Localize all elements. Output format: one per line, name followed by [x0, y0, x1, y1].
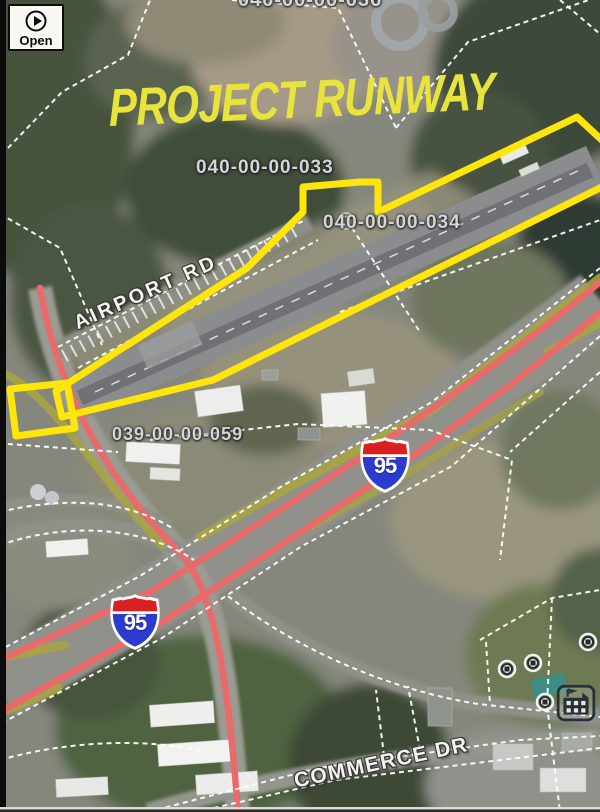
parcel-label-clipped: 040-00-00-036	[238, 0, 382, 12]
open-button[interactable]: Open	[8, 4, 64, 51]
route-number: 95	[357, 453, 413, 479]
interstate-95-shield: 95	[107, 593, 163, 651]
open-button-label: Open	[19, 34, 52, 47]
bottom-edge-strip	[0, 807, 600, 812]
interstate-95-shield: 95	[357, 436, 413, 494]
route-number: 95	[107, 610, 163, 636]
left-edge-bar	[0, 0, 6, 812]
play-circle-icon	[24, 9, 48, 33]
parcel-label-033: 040-00-00-033	[196, 157, 334, 179]
building-icon	[555, 681, 597, 723]
parcel-label-034: 040-00-00-034	[323, 212, 461, 234]
map-canvas[interactable]: 040-00-00-036 040-00-00-033 040-00-00-03…	[0, 0, 600, 812]
parcel-label-059: 039-00-00-059	[112, 424, 243, 445]
